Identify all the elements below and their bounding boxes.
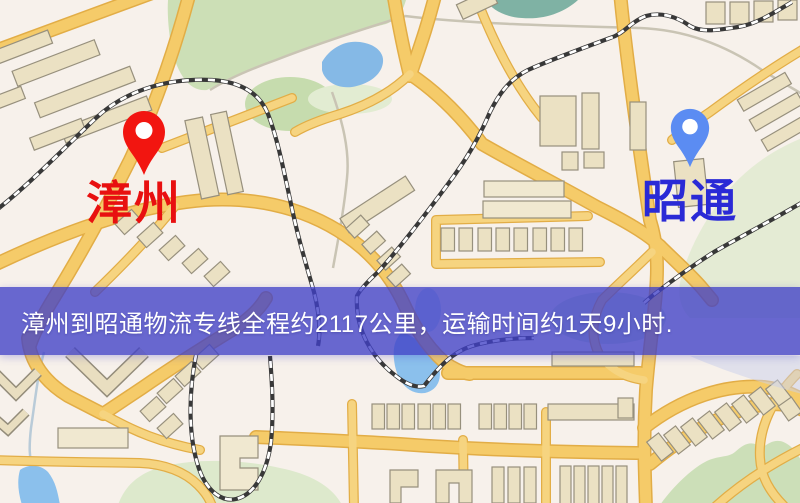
destination-pin-icon[interactable] xyxy=(669,107,711,169)
origin-city-label: 漳州 xyxy=(86,180,182,226)
destination-city-label: 昭通 xyxy=(642,178,738,224)
route-map: 漳州 昭通 漳州到昭通物流专线全程约2117公里，运输时间约1天9小时. xyxy=(0,0,800,503)
route-info-text: 漳州到昭通物流专线全程约2117公里，运输时间约1天9小时. xyxy=(21,304,673,339)
route-info-banner: 漳州到昭通物流专线全程约2117公里，运输时间约1天9小时. xyxy=(0,287,800,355)
map-canvas[interactable] xyxy=(0,0,800,503)
origin-pin-icon[interactable] xyxy=(121,109,167,177)
